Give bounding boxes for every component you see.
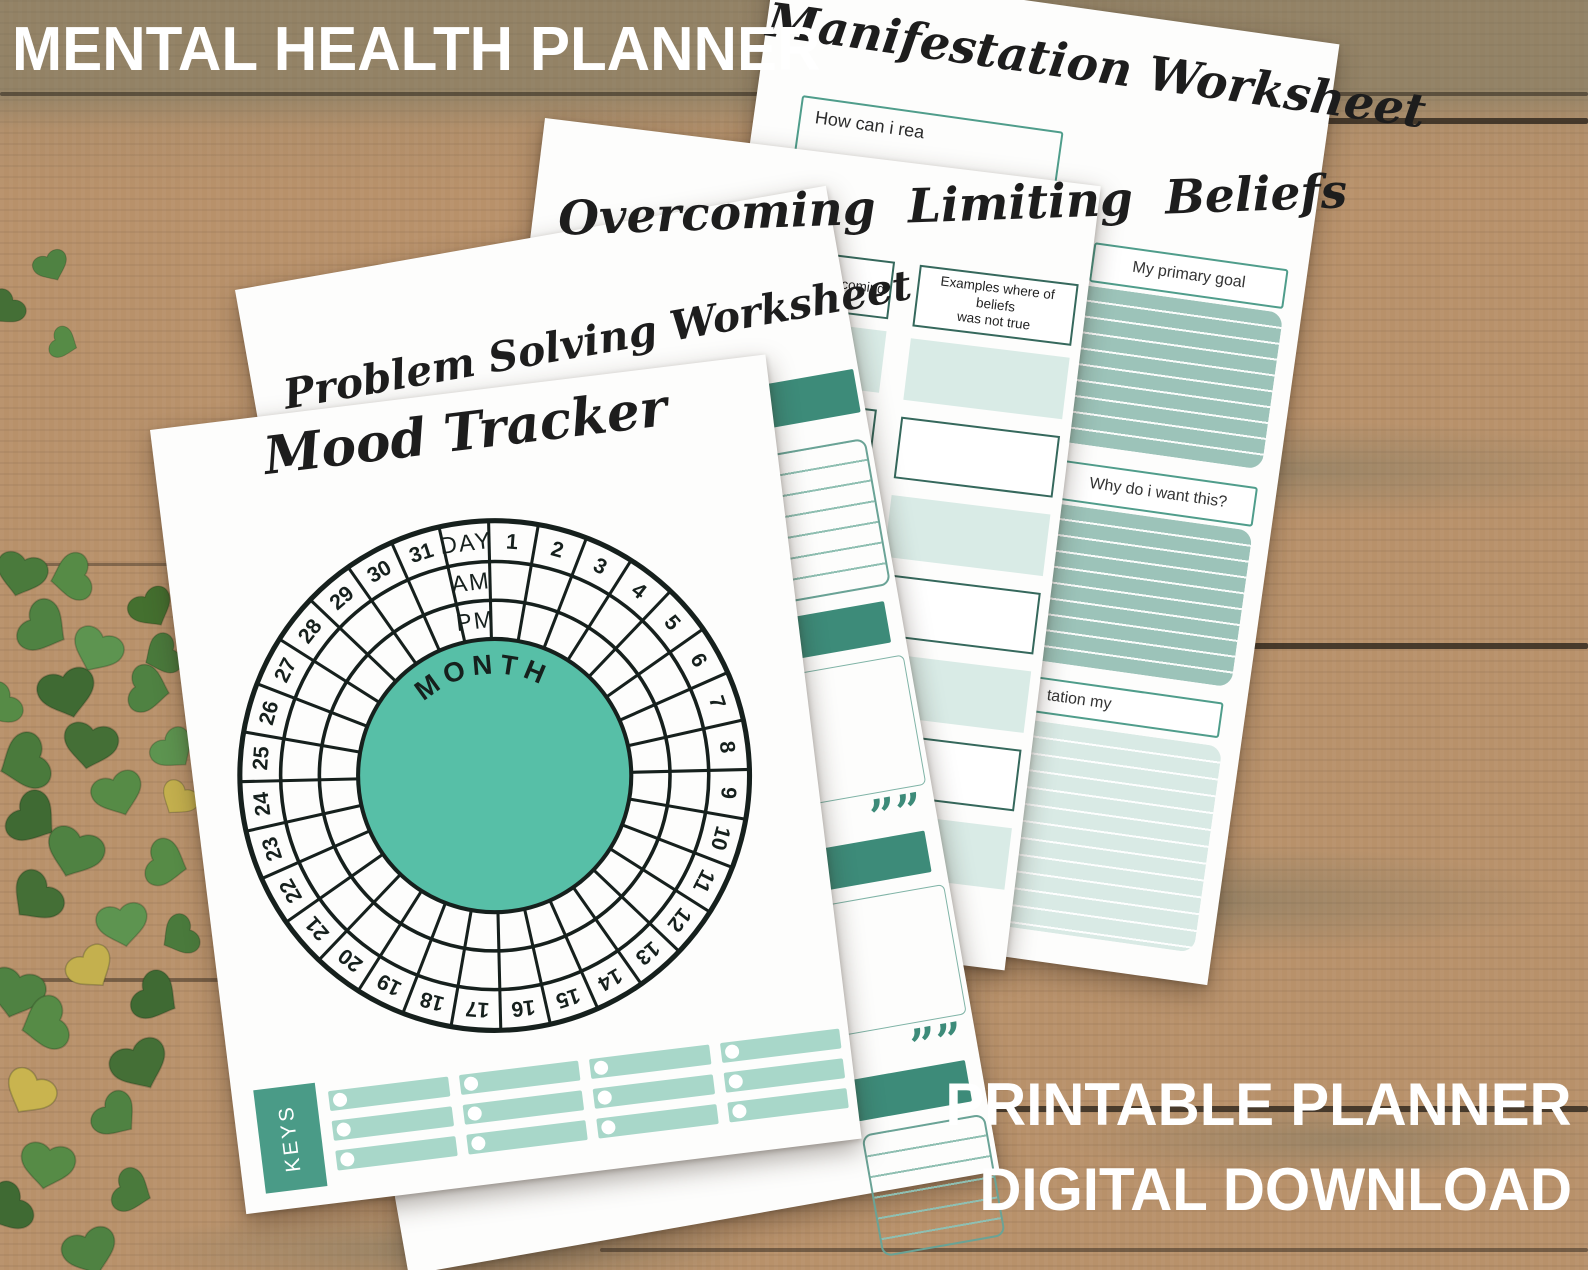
- svg-text:28: 28: [293, 614, 327, 648]
- svg-text:1: 1: [505, 529, 519, 554]
- svg-text:10: 10: [706, 824, 736, 853]
- manifestation-question-label: How can i rea: [800, 97, 1062, 162]
- key-entry-bar: [332, 1106, 454, 1141]
- main-title: MENTAL HEALTH PLANNER: [12, 14, 821, 85]
- svg-text:25: 25: [248, 745, 274, 771]
- svg-text:20: 20: [334, 943, 368, 977]
- svg-text:21: 21: [300, 912, 334, 946]
- key-entry-bar: [593, 1074, 715, 1109]
- svg-text:13: 13: [631, 936, 665, 970]
- svg-text:7: 7: [704, 693, 731, 712]
- svg-text:26: 26: [254, 698, 284, 727]
- footer-digital-download: DIGITAL DOWNLOAD: [979, 1155, 1572, 1224]
- plank-seam: [600, 1248, 1588, 1252]
- svg-text:3: 3: [589, 553, 611, 580]
- svg-text:27: 27: [269, 654, 301, 686]
- svg-text:PM: PM: [455, 605, 497, 636]
- belief-table-row: [884, 495, 1050, 576]
- primary-goal-writing-area: [1052, 284, 1284, 470]
- key-dot-icon: [332, 1092, 348, 1108]
- svg-text:DAY: DAY: [438, 527, 493, 559]
- svg-text:11: 11: [688, 866, 720, 897]
- svg-text:15: 15: [553, 983, 583, 1013]
- svg-text:5: 5: [659, 610, 685, 635]
- product-mockup-image: Manifestation Worksheet How can i rea My…: [0, 0, 1588, 1270]
- key-entry-bar: [589, 1045, 711, 1080]
- svg-text:8: 8: [715, 740, 740, 755]
- key-entry-bar: [466, 1120, 588, 1155]
- examples-column-header: Examples where of beliefs was not true: [912, 265, 1078, 346]
- key-dot-icon: [336, 1122, 352, 1138]
- svg-text:30: 30: [363, 555, 396, 588]
- svg-text:9: 9: [716, 786, 741, 800]
- key-entry-bar: [328, 1077, 450, 1112]
- footer-printable-planner: PRINTABLE PLANNER: [946, 1070, 1572, 1139]
- svg-text:16: 16: [510, 995, 537, 1022]
- belief-table-row: [894, 417, 1060, 498]
- key-entry-bar: [719, 1028, 841, 1063]
- key-dot-icon: [470, 1136, 486, 1152]
- svg-text:29: 29: [325, 581, 359, 615]
- key-dot-icon: [727, 1074, 743, 1090]
- key-entry-bar: [462, 1090, 584, 1125]
- key-entry-bar: [335, 1136, 457, 1171]
- key-dot-icon: [597, 1090, 613, 1106]
- key-entry-bar: [458, 1061, 580, 1096]
- svg-text:4: 4: [627, 578, 651, 604]
- svg-text:24: 24: [249, 791, 276, 818]
- key-dot-icon: [731, 1104, 747, 1120]
- key-dot-icon: [463, 1076, 479, 1092]
- key-dot-icon: [593, 1060, 609, 1076]
- key-entry-bar: [596, 1104, 718, 1139]
- svg-text:14: 14: [594, 963, 627, 996]
- key-dot-icon: [601, 1120, 617, 1136]
- svg-text:AM: AM: [450, 567, 492, 598]
- keys-label: KEYS: [253, 1083, 327, 1194]
- svg-text:2: 2: [548, 537, 566, 563]
- svg-text:18: 18: [417, 987, 446, 1017]
- svg-text:6: 6: [685, 649, 712, 671]
- svg-text:19: 19: [373, 969, 405, 1001]
- key-entry-bar: [727, 1088, 849, 1123]
- mood-tracker-page: Mood Tracker 123456789101112131415161718…: [150, 354, 862, 1214]
- svg-text:22: 22: [274, 875, 307, 908]
- svg-text:23: 23: [257, 834, 287, 864]
- key-dot-icon: [724, 1044, 740, 1060]
- key-dot-icon: [340, 1152, 356, 1168]
- key-dot-icon: [466, 1106, 482, 1122]
- mood-tracker-circle: 1234567891011121314151617181920212223242…: [199, 480, 790, 1071]
- svg-text:17: 17: [465, 996, 491, 1022]
- svg-text:31: 31: [406, 538, 436, 568]
- belief-table-row: [903, 338, 1069, 419]
- key-entry-bar: [723, 1058, 845, 1093]
- svg-text:12: 12: [663, 903, 697, 937]
